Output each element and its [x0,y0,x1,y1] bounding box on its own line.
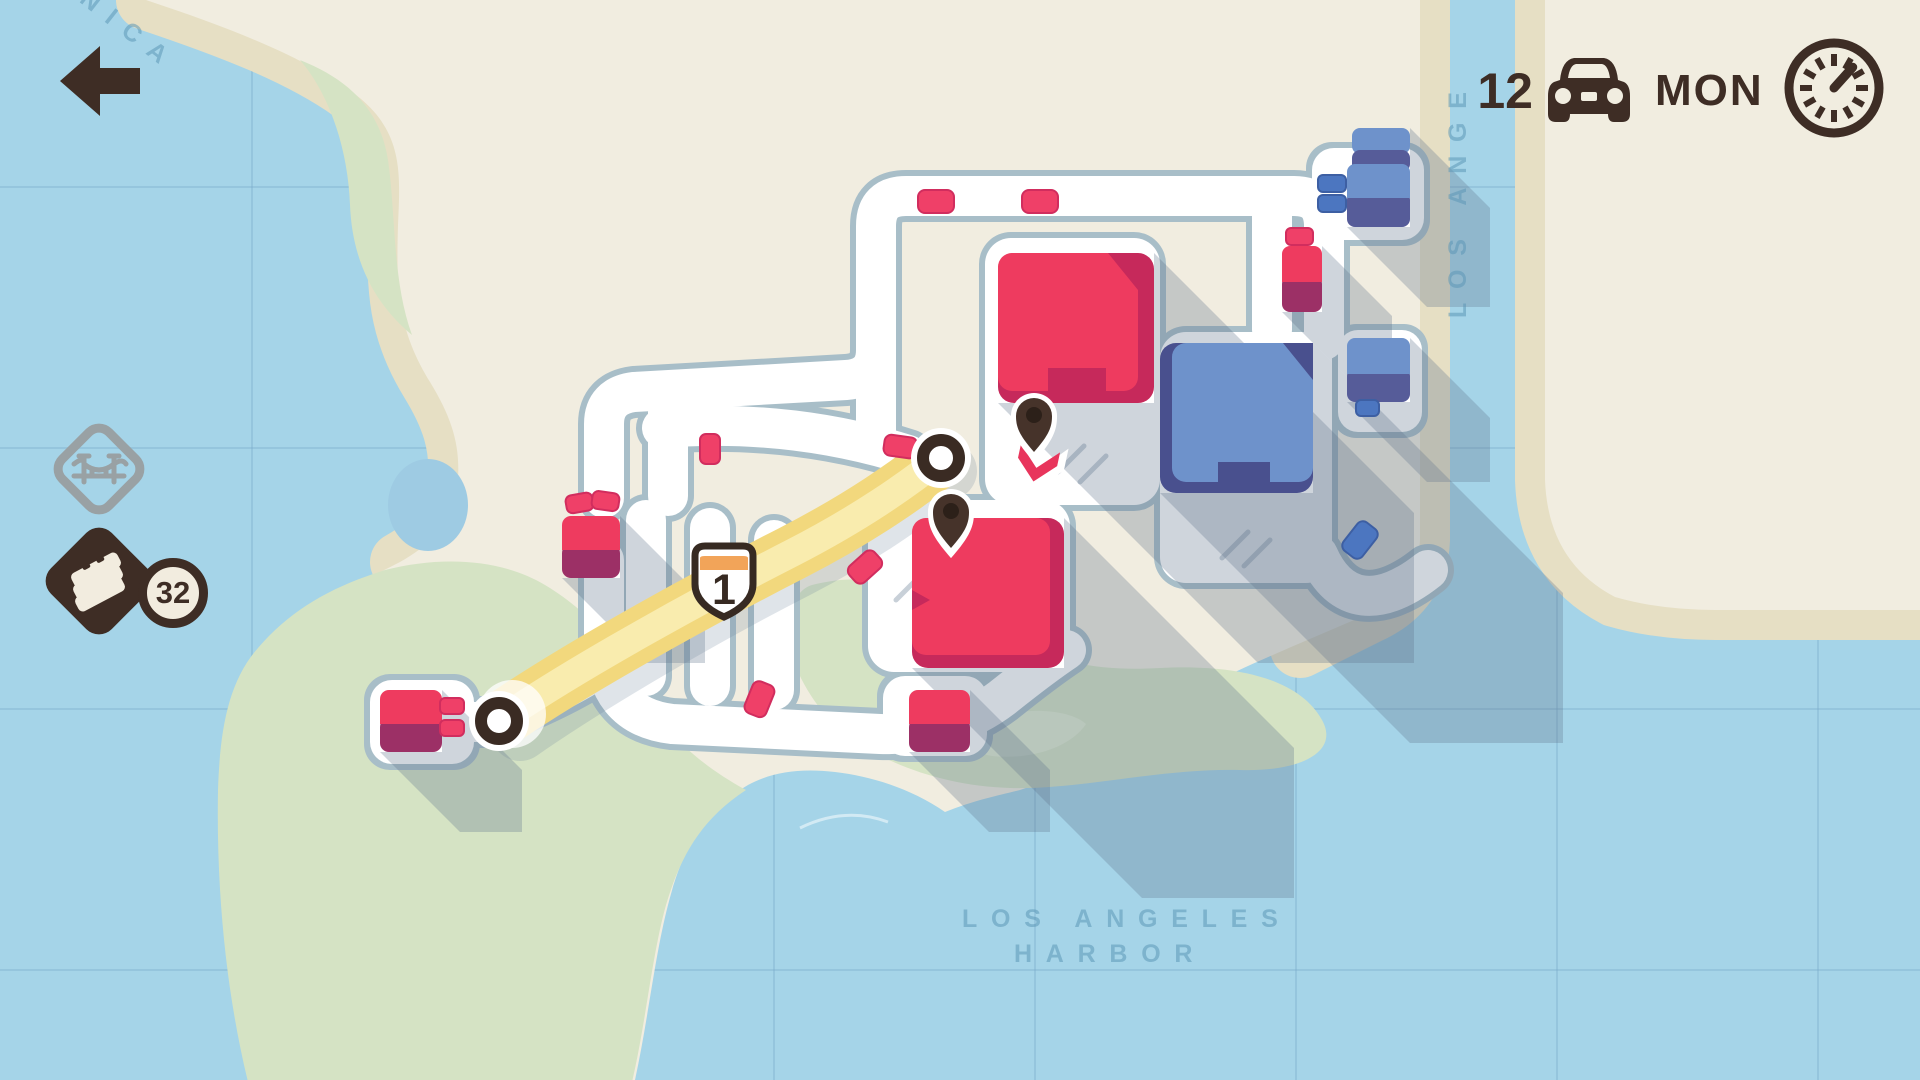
house-red-northeast [1282,246,1322,312]
destination-building-red-north [998,253,1154,403]
river-label: LOS ANGE [1444,0,1473,318]
harbor-label-line2: HARBOR [1014,940,1206,969]
destination-building-blue [1160,343,1313,493]
motorway-endpoint [469,691,529,751]
destination-building-red-central [912,518,1064,668]
game-screen: 1 12 MON [0,0,1920,1080]
house-red-southwest [380,690,442,752]
house-red-south [909,690,970,752]
house-red-west [562,516,620,578]
bridge-icon [44,414,154,524]
pond [388,459,468,551]
house-blue-north-b [1347,164,1410,227]
shield-number: 1 [691,544,757,620]
game-map[interactable] [0,0,1920,1080]
motorway-endpoint [911,428,971,488]
day-label: MON [1655,66,1764,116]
road-tiles-count-badge: 32 [138,558,208,628]
harbor-label-line1: LOS ANGELES [962,905,1292,934]
house-blue-east [1347,338,1410,402]
